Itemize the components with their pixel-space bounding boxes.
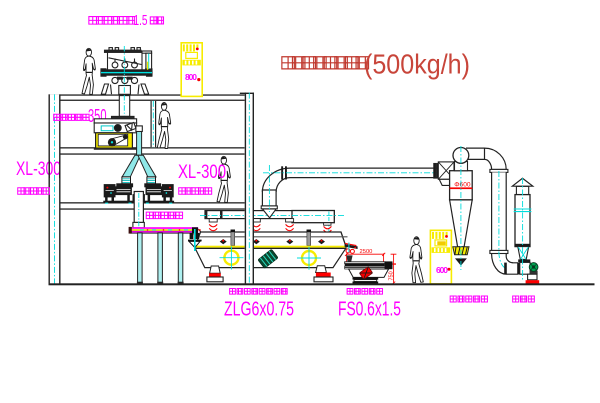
svg-text:FS0.6x1.5: FS0.6x1.5 xyxy=(338,298,401,320)
svg-text:(500kg/h): (500kg/h) xyxy=(364,49,470,80)
svg-text:Φ600: Φ600 xyxy=(454,181,471,188)
svg-text:600: 600 xyxy=(436,265,448,275)
svg-text:800: 800 xyxy=(185,72,197,82)
svg-text:XL-300: XL-300 xyxy=(178,162,226,183)
svg-text:2500: 2500 xyxy=(360,249,373,255)
svg-text:1.5: 1.5 xyxy=(134,12,148,29)
svg-text:XL-300: XL-300 xyxy=(16,159,61,180)
svg-text:ZLG6x0.75: ZLG6x0.75 xyxy=(224,298,294,320)
svg-text:750: 750 xyxy=(389,271,395,280)
